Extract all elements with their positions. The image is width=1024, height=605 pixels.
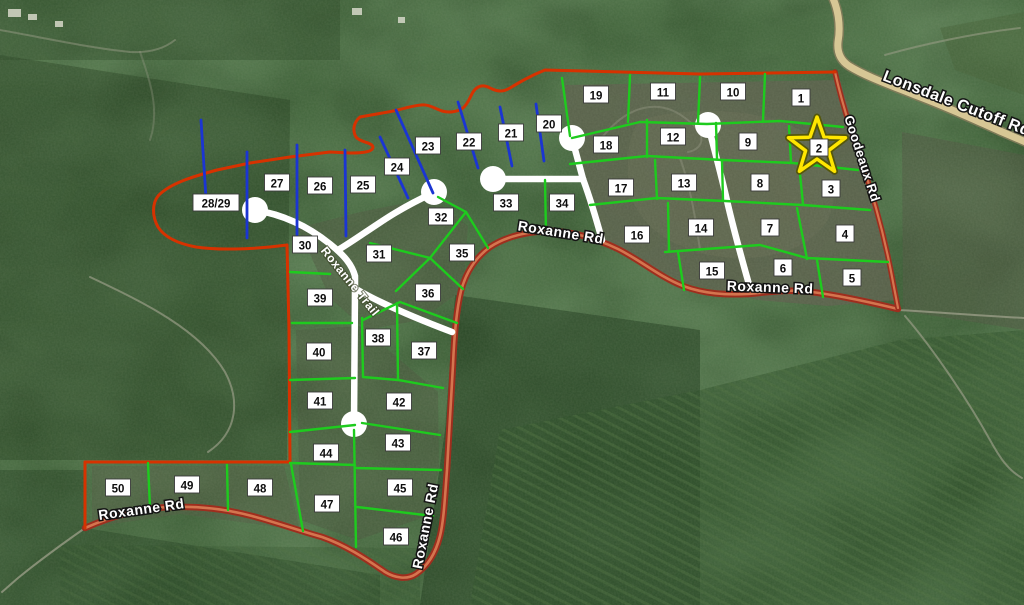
lot-label-25: 25: [351, 176, 376, 193]
lot-label-36: 36: [416, 284, 441, 301]
lot-number: 12: [667, 133, 680, 145]
lot-number: 17: [615, 184, 628, 196]
lot-number: 1: [798, 94, 805, 106]
lot-number: 34: [556, 199, 569, 211]
lot-label-19: 19: [584, 86, 609, 103]
lot-number: 2: [816, 144, 822, 156]
lot-label-4: 4: [836, 225, 854, 242]
lot-label-15: 15: [700, 262, 725, 279]
lot-label-2: 2: [810, 139, 828, 156]
lot-number: 46: [390, 533, 403, 545]
lot-label-42: 42: [387, 393, 412, 410]
lot-number: 22: [463, 138, 476, 150]
plat-map-image: Lonsdale Cutoff RdGoodeaux RdRoxanne RdR…: [0, 0, 1024, 605]
lot-label-32: 32: [429, 208, 454, 225]
lot-number: 28/29: [202, 199, 231, 211]
lot-number: 50: [112, 484, 125, 496]
lot-number: 15: [706, 267, 719, 279]
lot-number: 6: [780, 264, 786, 276]
lot-label-35: 35: [450, 244, 475, 261]
lot-line-blue: [345, 150, 346, 236]
lot-number: 14: [695, 224, 708, 236]
lot-label-11: 11: [651, 83, 676, 100]
lot-label-47: 47: [315, 495, 340, 512]
lot-label-40: 40: [307, 343, 332, 360]
lot-label-38: 38: [366, 329, 391, 346]
lot-number: 45: [394, 484, 407, 496]
lot-number: 27: [271, 179, 284, 191]
lot-label-34: 34: [550, 194, 575, 211]
lot-number: 48: [254, 484, 267, 496]
lot-label-41: 41: [308, 392, 333, 409]
lot-label-50: 50: [106, 479, 131, 496]
lot-label-18: 18: [594, 136, 619, 153]
lot-label-22: 22: [457, 133, 482, 150]
lot-number: 18: [600, 141, 613, 153]
lot-label-30: 30: [293, 236, 318, 253]
lot-label-21: 21: [499, 124, 524, 141]
lot-number: 36: [422, 289, 435, 301]
lot-line-green: [227, 465, 228, 510]
lot-label-37: 37: [412, 342, 437, 359]
lot-number: 10: [727, 88, 740, 100]
lot-number: 7: [767, 224, 773, 236]
lot-line-green: [668, 203, 669, 250]
lot-label-24: 24: [385, 158, 410, 175]
lot-label-16: 16: [625, 226, 650, 243]
lot-label-33: 33: [494, 194, 519, 211]
lot-number: 4: [842, 230, 849, 242]
lot-number: 40: [313, 348, 326, 360]
lot-number: 37: [418, 347, 431, 359]
lot-line-green: [362, 318, 363, 377]
lot-number: 19: [590, 91, 603, 103]
lot-label-7: 7: [761, 219, 779, 236]
lot-label-5: 5: [843, 269, 861, 286]
lot-line-green: [397, 303, 398, 380]
lot-label-8: 8: [751, 174, 769, 191]
lot-label-43: 43: [386, 434, 411, 451]
lot-label-10: 10: [721, 83, 746, 100]
lot-label-48: 48: [248, 479, 273, 496]
lot-number: 31: [373, 250, 386, 262]
lot-number: 41: [314, 397, 327, 409]
lot-number: 16: [631, 231, 644, 243]
lot-number: 43: [392, 439, 405, 451]
lot-number: 21: [505, 129, 518, 141]
lot-label-49: 49: [175, 476, 200, 493]
lot-label-44: 44: [314, 444, 339, 461]
plat-map: Lonsdale Cutoff RdGoodeaux RdRoxanne RdR…: [0, 0, 1024, 605]
lot-number: 33: [500, 199, 513, 211]
lot-number: 26: [314, 182, 327, 194]
lot-label-14: 14: [689, 219, 714, 236]
lot-label-26: 26: [308, 177, 333, 194]
lot-number: 30: [299, 241, 312, 253]
lot-label-23: 23: [416, 137, 441, 154]
lot-label-20: 20: [537, 115, 562, 132]
lot-number: 8: [757, 179, 764, 191]
lot-label-6: 6: [774, 259, 792, 276]
lot-label-45: 45: [388, 479, 413, 496]
lot-number: 13: [678, 179, 691, 191]
lot-label-1: 1: [792, 89, 810, 106]
lot-label-9: 9: [739, 133, 757, 150]
lot-number: 11: [657, 88, 670, 100]
lot-line-green: [722, 161, 723, 200]
lot-number: 9: [745, 138, 751, 150]
lot-label-12: 12: [661, 128, 686, 145]
lot-label-46: 46: [384, 528, 409, 545]
lot-label-3: 3: [822, 180, 840, 197]
lot-label-13: 13: [672, 174, 697, 191]
lot-number: 42: [393, 398, 406, 410]
lot-number: 39: [314, 294, 327, 306]
lot-number: 23: [422, 142, 435, 154]
lot-label-31: 31: [367, 245, 392, 262]
lot-label-28-29: 28/29: [193, 194, 239, 211]
lot-number: 25: [357, 181, 370, 193]
lot-number: 38: [372, 334, 385, 346]
lot-line-green: [716, 123, 717, 159]
lot-label-27: 27: [265, 174, 290, 191]
lot-number: 3: [828, 185, 834, 197]
lot-label-17: 17: [609, 179, 634, 196]
lot-number: 35: [456, 249, 469, 261]
lot-number: 49: [181, 481, 194, 493]
lot-number: 32: [435, 213, 448, 225]
lot-number: 5: [849, 274, 856, 286]
lot-label-39: 39: [308, 289, 333, 306]
lot-number: 44: [320, 449, 333, 461]
lot-number: 24: [391, 163, 404, 175]
lot-number: 20: [543, 120, 556, 132]
cul-de-sac: [480, 166, 506, 192]
lot-number: 47: [321, 500, 334, 512]
road-label: Roxanne Rd: [727, 277, 814, 296]
